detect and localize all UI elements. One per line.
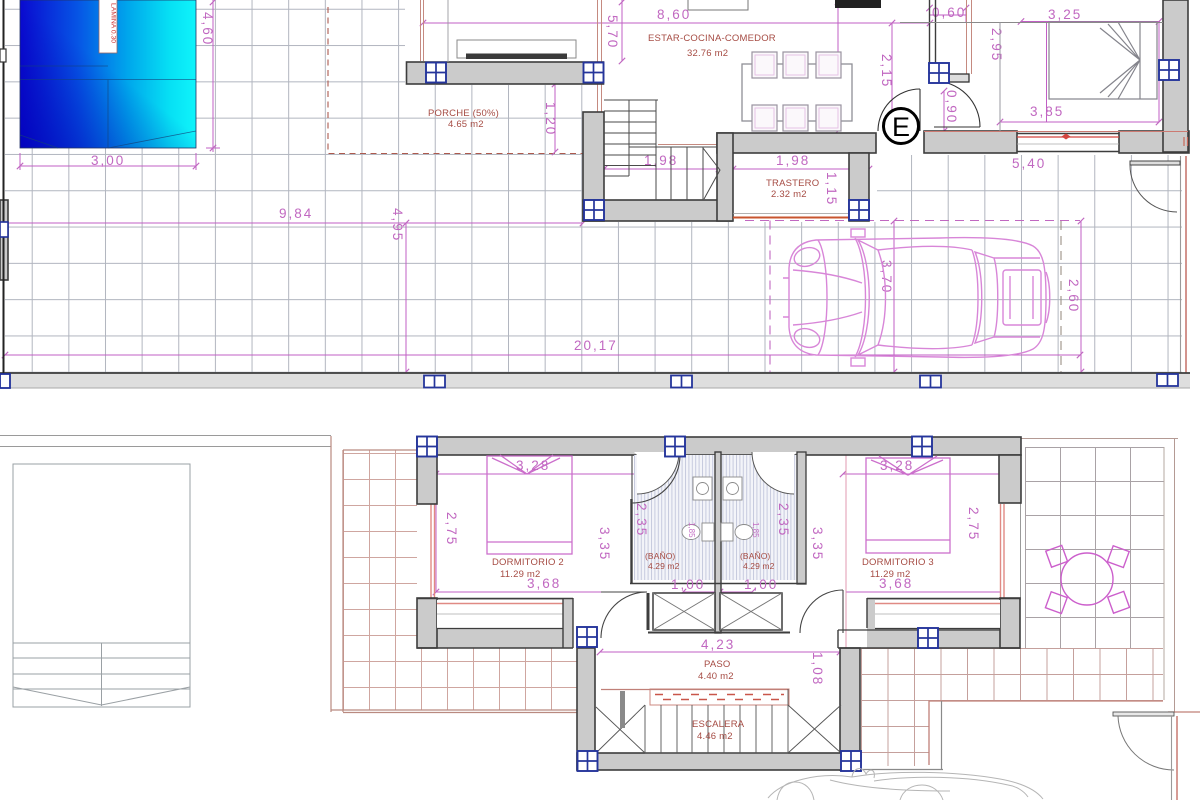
svg-text:LAMINA 0.30: LAMINA 0.30 bbox=[110, 3, 117, 43]
svg-text:4,23: 4,23 bbox=[701, 637, 735, 652]
svg-text:PASO: PASO bbox=[704, 659, 731, 670]
svg-text:3,28: 3,28 bbox=[516, 458, 550, 473]
svg-text:1,20: 1,20 bbox=[543, 102, 558, 136]
svg-text:4,60: 4,60 bbox=[200, 12, 215, 46]
svg-text:(BAÑO): (BAÑO) bbox=[740, 551, 770, 561]
svg-text:1,00: 1,00 bbox=[744, 577, 778, 592]
svg-text:3,28: 3,28 bbox=[880, 458, 914, 473]
svg-text:1,85: 1,85 bbox=[687, 522, 696, 538]
svg-text:3,25: 3,25 bbox=[1048, 7, 1082, 22]
svg-text:0,90: 0,90 bbox=[944, 90, 959, 124]
svg-text:2,15: 2,15 bbox=[879, 54, 894, 88]
svg-text:9,84: 9,84 bbox=[279, 206, 313, 221]
svg-text:1,15: 1,15 bbox=[824, 172, 839, 206]
svg-text:3,00: 3,00 bbox=[91, 153, 125, 168]
svg-text:20,17: 20,17 bbox=[574, 338, 618, 353]
svg-text:1,08: 1,08 bbox=[810, 652, 825, 686]
svg-text:2.32 m2: 2.32 m2 bbox=[771, 189, 807, 200]
svg-text:8,60: 8,60 bbox=[657, 7, 691, 22]
svg-text:11.29 m2: 11.29 m2 bbox=[500, 569, 541, 580]
svg-text:2,35: 2,35 bbox=[634, 503, 649, 537]
svg-text:PORCHE (50%): PORCHE (50%) bbox=[428, 108, 499, 119]
svg-text:2,75: 2,75 bbox=[966, 507, 981, 541]
svg-text:3,85: 3,85 bbox=[1030, 104, 1064, 119]
svg-text:(BAÑO): (BAÑO) bbox=[645, 551, 675, 561]
svg-text:1,85: 1,85 bbox=[751, 522, 760, 538]
svg-text:4.65 m2: 4.65 m2 bbox=[448, 119, 484, 130]
svg-text:4.29 m2: 4.29 m2 bbox=[648, 561, 680, 571]
svg-text:1,98: 1,98 bbox=[776, 153, 810, 168]
svg-text:DORMITORIO 2: DORMITORIO 2 bbox=[492, 557, 564, 568]
svg-text:4.46 m2: 4.46 m2 bbox=[697, 731, 733, 742]
svg-text:1,00: 1,00 bbox=[671, 577, 705, 592]
svg-text:4.40 m2: 4.40 m2 bbox=[698, 671, 734, 682]
svg-text:E: E bbox=[892, 112, 910, 142]
svg-text:5,40: 5,40 bbox=[1012, 156, 1046, 171]
svg-text:3,35: 3,35 bbox=[810, 527, 825, 561]
svg-text:TRASTERO: TRASTERO bbox=[766, 178, 819, 189]
svg-text:3,70: 3,70 bbox=[879, 260, 894, 294]
svg-text:2,75: 2,75 bbox=[444, 512, 459, 546]
svg-text:5,70: 5,70 bbox=[605, 15, 620, 49]
svg-text:11.29 m2: 11.29 m2 bbox=[870, 569, 911, 580]
svg-text:ESCALERA: ESCALERA bbox=[692, 719, 745, 730]
svg-text:ESTAR-COCINA-COMEDOR: ESTAR-COCINA-COMEDOR bbox=[648, 33, 776, 44]
svg-text:2,35: 2,35 bbox=[776, 503, 791, 537]
svg-text:0,60: 0,60 bbox=[932, 5, 966, 20]
svg-text:32.76 m2: 32.76 m2 bbox=[687, 48, 728, 59]
svg-text:2,95: 2,95 bbox=[989, 28, 1004, 62]
svg-text:3,35: 3,35 bbox=[597, 527, 612, 561]
svg-text:4.29 m2: 4.29 m2 bbox=[743, 561, 775, 571]
svg-text:DORMITORIO 3: DORMITORIO 3 bbox=[862, 557, 934, 568]
svg-text:4,95: 4,95 bbox=[390, 208, 405, 242]
svg-text:2,60: 2,60 bbox=[1066, 279, 1081, 313]
